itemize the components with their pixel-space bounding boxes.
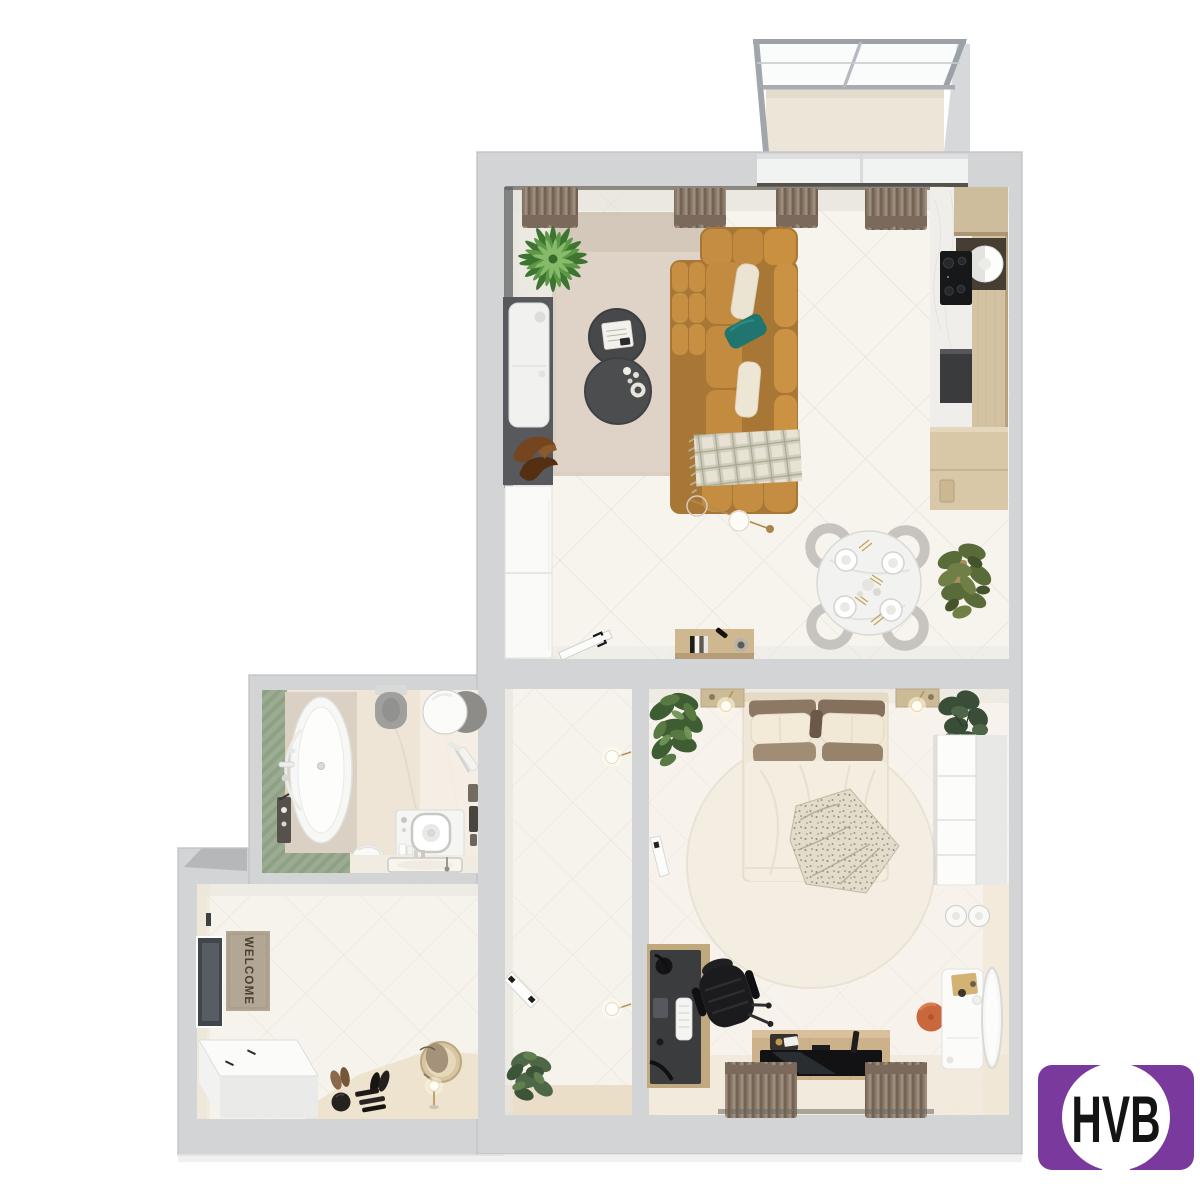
svg-text:WELCOME: WELCOME <box>242 937 254 1005</box>
svg-text:HVB: HVB <box>1071 1082 1160 1156</box>
